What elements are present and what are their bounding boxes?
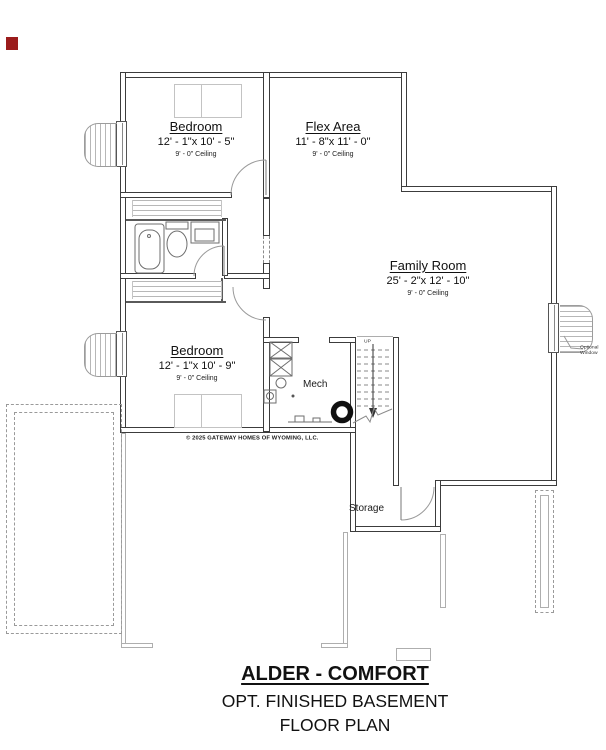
wall-closet2-bottom xyxy=(126,301,226,303)
wall-bath-right xyxy=(222,218,228,276)
vanity-sink xyxy=(191,222,219,243)
room-label-family-room: Family Room 25' - 2"x 12' - 10" 9' - 0" … xyxy=(356,259,500,298)
window-well-bedroom2 xyxy=(84,333,117,377)
plan-type: FLOOR PLAN xyxy=(95,715,575,736)
room-name: Bedroom xyxy=(127,344,267,359)
wall-hall-upper xyxy=(263,198,270,236)
toilet xyxy=(166,222,188,257)
wall-bath-bottom-left xyxy=(120,273,196,279)
corner-marker xyxy=(6,37,18,50)
dashed-outline-garage-inner xyxy=(14,412,114,626)
room-ceiling: 9' - 0" Ceiling xyxy=(356,290,500,298)
room-label-flex-area: Flex Area 11' - 8"x 11' - 0" 9' - 0" Cei… xyxy=(263,120,403,159)
wall-bedroom1-bottom xyxy=(120,192,232,198)
stair-break-line xyxy=(353,408,392,423)
room-ceiling: 9' - 0" Ceiling xyxy=(127,375,267,383)
door-arc-bedroom2 xyxy=(233,287,266,320)
wall-closet1-bottom xyxy=(126,219,226,221)
window-well-bedroom1 xyxy=(84,123,117,167)
window-pane xyxy=(122,123,123,165)
wall-unfinished-right xyxy=(440,534,446,608)
room-label-storage: Storage xyxy=(349,503,384,514)
wall-family-top xyxy=(401,186,557,192)
room-dims: 25' - 2"x 12' - 10" xyxy=(356,275,500,288)
foundation-pier xyxy=(396,648,431,661)
room-label-mech: Mech xyxy=(303,379,327,390)
stairs xyxy=(353,344,392,423)
room-ceiling: 9' - 0" Ceiling xyxy=(126,151,266,159)
wall-family-bottom xyxy=(435,480,557,486)
wall-stair-right xyxy=(393,337,399,486)
floor-plan-sheet: Bedroom 12' - 1"x 10' - 5" 9' - 0" Ceili… xyxy=(0,0,606,750)
stairs-up-label: UP xyxy=(364,338,371,344)
window-pane xyxy=(122,333,123,375)
title-block: ALDER - COMFORT OPT. FINISHED BASEMENT F… xyxy=(95,663,575,736)
door-arc-bathroom xyxy=(194,246,224,276)
cased-opening xyxy=(263,236,270,263)
closet-shelves-1 xyxy=(132,200,222,217)
room-name: Family Room xyxy=(356,259,500,274)
bathtub xyxy=(135,224,164,273)
room-dims: 11' - 8"x 11' - 0" xyxy=(263,136,403,149)
room-label-bedroom2: Bedroom 12' - 1"x 10' - 9" 9' - 0" Ceili… xyxy=(127,344,267,383)
furniture-divider xyxy=(201,395,202,427)
wall-unfinished-middle-leg xyxy=(321,643,348,648)
water-heater xyxy=(334,404,351,421)
wall-storage-right xyxy=(435,480,441,532)
furniture-divider xyxy=(201,85,202,117)
room-dims: 12' - 1"x 10' - 5" xyxy=(126,136,266,149)
room-label-bedroom1: Bedroom 12' - 1"x 10' - 5" 9' - 0" Ceili… xyxy=(126,120,266,159)
optional-window-label: Optional Window xyxy=(580,344,603,355)
wall-storage-bottom xyxy=(350,526,441,532)
closet-shelves-2 xyxy=(132,281,222,299)
window-optional xyxy=(548,303,559,353)
window-bedroom2 xyxy=(116,331,127,377)
bedroom2-furniture xyxy=(174,394,242,428)
bedroom1-furniture xyxy=(174,84,242,118)
wall-bath-bottom-right xyxy=(224,273,270,279)
room-ceiling: 9' - 0" Ceiling xyxy=(263,151,403,159)
wall-mech-top-right xyxy=(329,337,356,343)
door-arc-storage xyxy=(401,487,434,520)
room-name: Bedroom xyxy=(126,120,266,135)
plan-subtitle: OPT. FINISHED BASEMENT xyxy=(95,691,575,712)
stair-arrow xyxy=(369,408,377,418)
stair-top-edge xyxy=(357,336,393,337)
plan-title: ALDER - COMFORT xyxy=(95,663,575,686)
wall-unfinished-middle xyxy=(343,532,348,647)
wall-mech-top-left xyxy=(263,337,299,343)
window-pane xyxy=(554,305,555,351)
dashed-outline-right xyxy=(535,490,554,613)
washer-dryer-boxes xyxy=(270,342,292,376)
copyright-note: © 2025 GATEWAY HOMES OF WYOMING, LLC. xyxy=(186,434,319,441)
room-name: Flex Area xyxy=(263,120,403,135)
wall-unfinished-bottom-left xyxy=(121,643,153,648)
room-dims: 12' - 1"x 10' - 9" xyxy=(127,360,267,373)
door-arc-bedroom1 xyxy=(231,160,266,195)
